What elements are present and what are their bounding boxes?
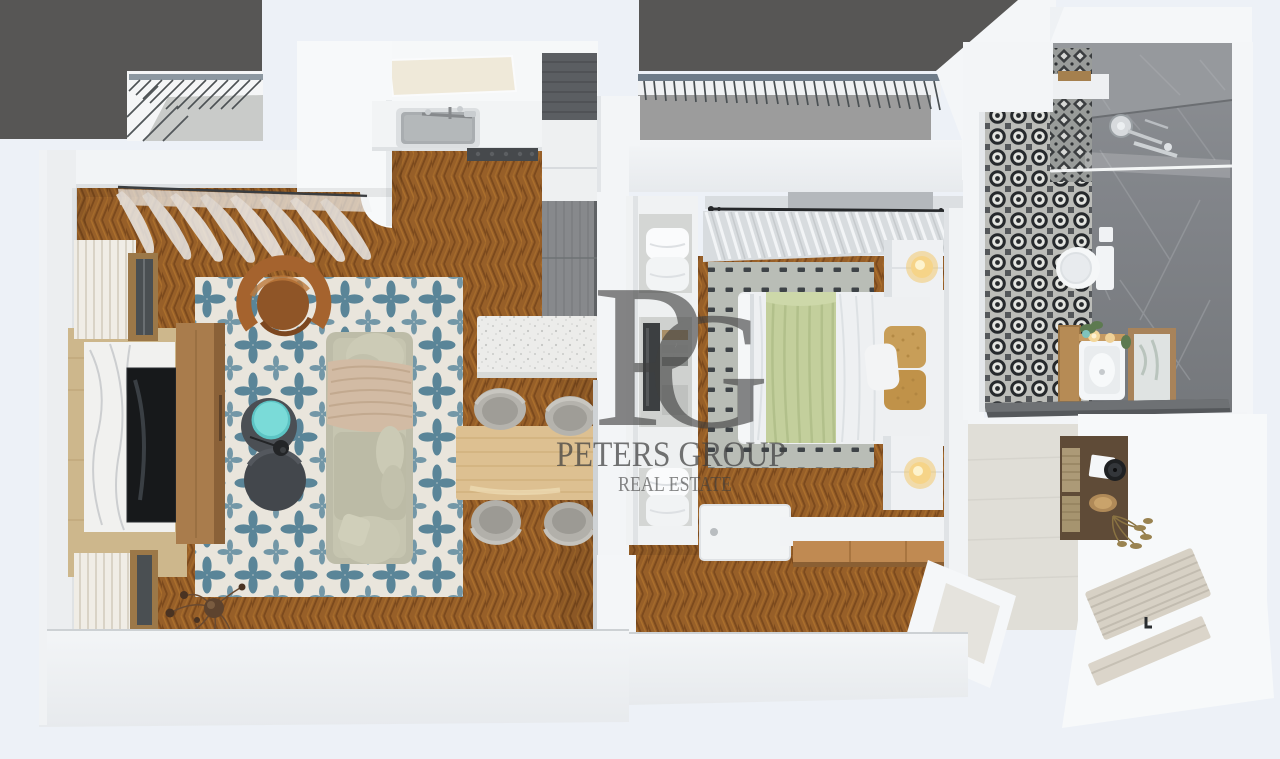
svg-text:PETERS GROUP: PETERS GROUP <box>556 434 786 474</box>
svg-text:REAL ESTATE: REAL ESTATE <box>618 472 732 496</box>
